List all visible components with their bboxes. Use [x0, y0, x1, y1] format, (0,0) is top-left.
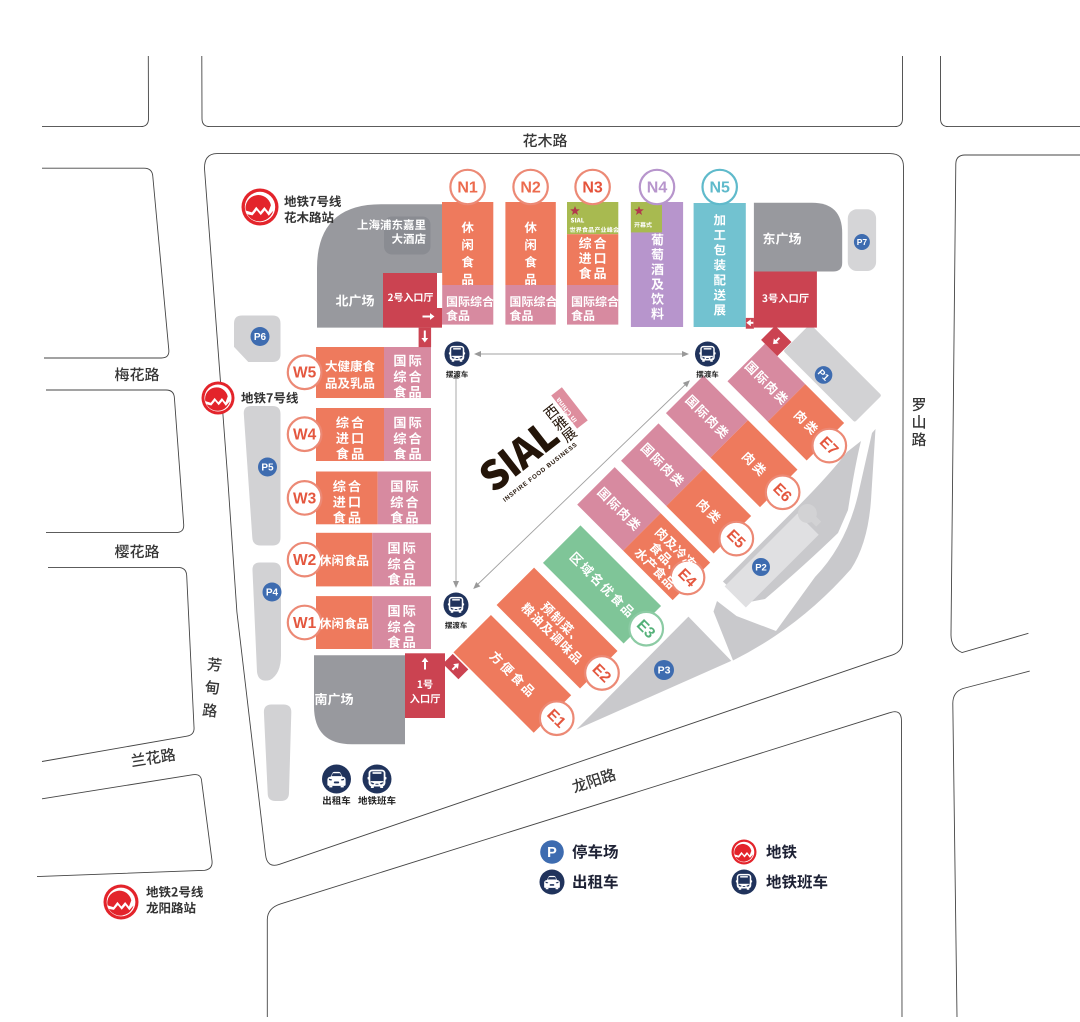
- svg-text:W4: W4: [293, 427, 317, 444]
- svg-text:W5: W5: [293, 365, 317, 382]
- svg-text:P7: P7: [857, 237, 868, 247]
- svg-text:P5: P5: [261, 463, 274, 474]
- svg-text:N3: N3: [582, 180, 603, 197]
- svg-text:W1: W1: [293, 615, 317, 632]
- svg-text:P2: P2: [755, 562, 767, 573]
- svg-text:P4: P4: [266, 588, 279, 599]
- svg-text:W3: W3: [293, 490, 317, 507]
- svg-text:N4: N4: [647, 180, 668, 197]
- svg-text:N5: N5: [709, 180, 730, 197]
- svg-text:P6: P6: [254, 332, 267, 343]
- svg-text:P: P: [547, 845, 557, 861]
- svg-text:N2: N2: [520, 180, 541, 197]
- svg-text:P3: P3: [658, 665, 671, 677]
- svg-text:N1: N1: [457, 180, 478, 197]
- svg-text:W2: W2: [293, 552, 316, 569]
